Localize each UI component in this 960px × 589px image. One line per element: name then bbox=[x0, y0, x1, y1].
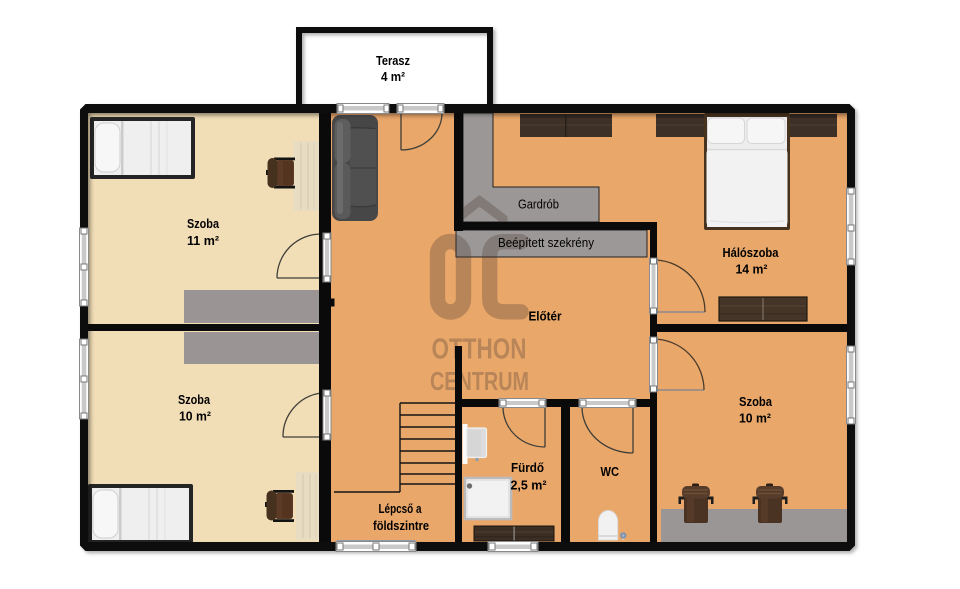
svg-text:2,5 m²: 2,5 m² bbox=[511, 478, 548, 493]
svg-text:WC: WC bbox=[601, 464, 620, 479]
svg-text:Előtér: Előtér bbox=[529, 309, 562, 324]
svg-text:Lépcső a: Lépcső a bbox=[379, 501, 423, 516]
svg-text:4 m²: 4 m² bbox=[381, 69, 406, 84]
svg-text:Beépített szekrény: Beépített szekrény bbox=[498, 235, 594, 250]
svg-text:OTTHON: OTTHON bbox=[432, 334, 527, 366]
svg-text:Fürdő: Fürdő bbox=[511, 460, 544, 475]
svg-text:14 m²: 14 m² bbox=[736, 262, 769, 277]
svg-text:10 m²: 10 m² bbox=[179, 409, 212, 424]
svg-text:földszintre: földszintre bbox=[373, 518, 429, 533]
svg-text:Terasz: Terasz bbox=[376, 53, 410, 68]
svg-text:CENTRUM: CENTRUM bbox=[430, 366, 529, 396]
svg-text:Gardrób: Gardrób bbox=[518, 197, 559, 212]
svg-text:Szoba: Szoba bbox=[187, 216, 220, 231]
svg-text:Szoba: Szoba bbox=[178, 392, 211, 407]
svg-text:10 m²: 10 m² bbox=[739, 411, 772, 426]
svg-text:11 m²: 11 m² bbox=[187, 233, 220, 248]
svg-text:Szoba: Szoba bbox=[739, 394, 773, 409]
svg-text:Hálószoba: Hálószoba bbox=[723, 245, 780, 260]
